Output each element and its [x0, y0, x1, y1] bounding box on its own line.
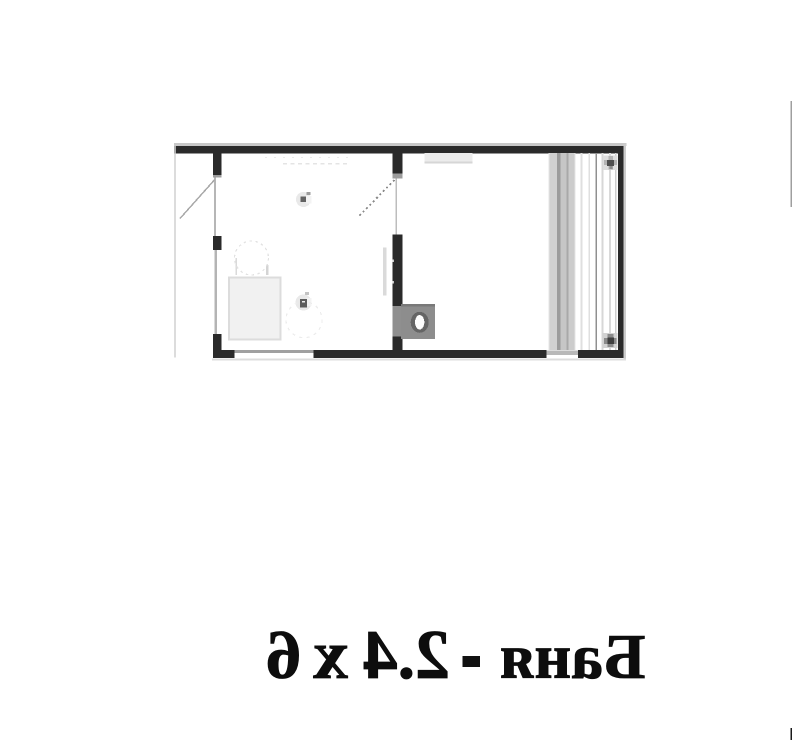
svg-text:6: 6 — [266, 617, 301, 694]
svg-text:x: x — [313, 617, 348, 694]
svg-text:Баня: Баня — [500, 621, 646, 692]
svg-text:2.4: 2.4 — [363, 617, 451, 694]
